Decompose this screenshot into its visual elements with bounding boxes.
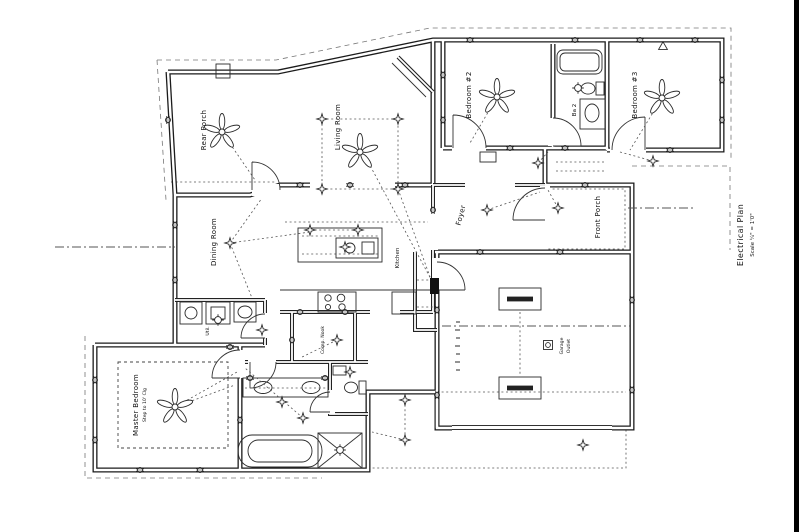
label-utility: Util. <box>205 326 211 335</box>
label-bath-2: Ba 2 <box>572 104 578 116</box>
note-marks <box>455 322 460 370</box>
label-dining-room: Dining Room <box>210 218 218 266</box>
label-bedroom-3: Bedroom #3 <box>631 71 639 118</box>
scan-edge-bar <box>794 0 799 532</box>
floor-plan-drawing: Rear Porch Living Room Bedroom #2 Ba 2 B… <box>0 0 799 532</box>
toilet <box>581 82 604 95</box>
plan-title: Electrical Plan <box>736 204 745 266</box>
smoke-detector-icon <box>659 42 668 50</box>
label-foyer: Foyer <box>454 204 467 226</box>
ceiling-fan-icon <box>644 80 681 115</box>
svg-text:Outlet: Outlet <box>566 339 572 353</box>
electrical-panel-icon <box>430 278 439 294</box>
svg-text:Step to 10' Clg: Step to 10' Clg <box>142 388 148 422</box>
cooktop <box>280 290 430 312</box>
fluorescent-fixture-icon <box>499 377 541 399</box>
label-garage-outlet: Garage Outlet <box>559 337 572 354</box>
label-master-bedroom: Master Bedroom Step to 10' Clg <box>132 374 148 436</box>
fluorescent-fixture-icon <box>499 288 541 310</box>
electrical-plan-screenshot: Rear Porch Living Room Bedroom #2 Ba 2 B… <box>0 0 799 532</box>
title-block: Electrical Plan Scale ¼" = 1'0" <box>736 204 756 266</box>
linen-shelves <box>556 162 604 171</box>
ceiling-fan-icon <box>157 389 194 424</box>
vanity-sink <box>580 99 605 129</box>
attic-access <box>480 152 496 162</box>
label-living-room: Living Room <box>334 104 342 150</box>
label-comp-nook: Comp. Nook <box>320 326 326 354</box>
label-front-porch: Front Porch <box>594 196 602 239</box>
fixtures <box>180 50 605 468</box>
garden-tub <box>238 435 322 467</box>
ceiling-fan-icon <box>479 79 516 114</box>
ceiling-fan-icon <box>204 114 241 149</box>
smoke-detectors <box>659 42 668 50</box>
door-openings <box>235 118 646 433</box>
garage-outlet-icon <box>544 341 553 350</box>
plan-scale: Scale ¼" = 1'0" <box>750 213 756 257</box>
svg-text:Master Bedroom: Master Bedroom <box>132 374 140 436</box>
svg-text:Garage: Garage <box>559 337 565 354</box>
ceiling-fan-icon <box>342 134 379 169</box>
fluorescent-fixtures <box>499 288 541 399</box>
label-rear-porch: Rear Porch <box>200 110 208 151</box>
label-kitchen: Kitchen <box>395 247 401 268</box>
label-bedroom-2: Bedroom #2 <box>465 71 473 118</box>
ceiling-and-circuits <box>55 208 695 448</box>
